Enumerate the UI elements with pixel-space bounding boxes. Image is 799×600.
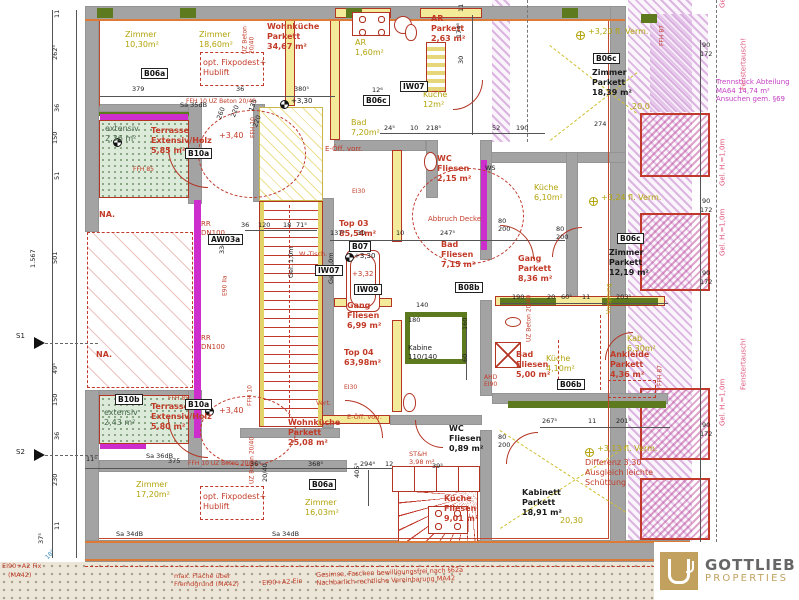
dimension-label: 375 [168, 458, 180, 466]
dimension-label: 60 [462, 354, 470, 362]
dimension-label: 190 [516, 125, 528, 133]
dimension-label: 37⁵ [38, 533, 46, 544]
dimension-label: 80 200 [498, 218, 510, 234]
room-label: EI90+A2 Fix [2, 563, 41, 571]
dimension-label: 172 [700, 207, 712, 215]
dimension-label: 137⁵ [330, 230, 345, 238]
dimension-label: 120 [258, 222, 270, 230]
component-tag: B06c [593, 53, 620, 64]
logo-u-glyph [668, 559, 690, 584]
dimension-label: 10 [410, 125, 418, 133]
dimension-label: 174⁵ [456, 23, 464, 38]
dimension-label: 267⁵ [542, 418, 557, 426]
dimension-label: 247⁵ [440, 230, 455, 238]
room-label: +3,13 fl. Verm. [597, 444, 657, 454]
room-label: E90 IIa [222, 275, 229, 296]
section-arrow-icon [34, 449, 45, 461]
optional-element-outline [608, 380, 656, 398]
dimension-line [76, 10, 77, 558]
dimension-label: 80 200 [556, 226, 568, 242]
room-label: extensiv 2,43 m² [104, 408, 138, 428]
room-label: +3,30 [291, 97, 312, 106]
dimension-label: 90 [702, 422, 710, 430]
logo-text: GOTTLIEB PROPERTIES [705, 558, 796, 585]
room-label: S1 [16, 332, 25, 341]
dimension-label: Sa 35dB [180, 102, 207, 110]
room-label: opt. Fixpodest+ Hublift [203, 58, 266, 78]
level-marker-icon [589, 197, 598, 206]
room-label-wohnkueche-1: Wohnküche Parkett 34,67 m² [267, 22, 319, 51]
room-label: extensiv 2,36 m² [105, 124, 139, 144]
room-label: EI30 [344, 384, 357, 391]
dimension-label: 379 [132, 86, 144, 94]
annotation-label: Gel. H.=1,0m [718, 379, 727, 426]
dimension-label: 11 [588, 418, 596, 426]
lintel-block [562, 8, 578, 18]
wall-outline [99, 20, 100, 106]
dimension-label: 60⁵ [561, 294, 572, 302]
component-tag: B07 [349, 241, 371, 252]
dimension-label: 80 200 [498, 434, 510, 450]
logo-name: GOTTLIEB [705, 558, 796, 574]
logo: GOTTLIEB PROPERTIES [654, 542, 799, 600]
toilet-icon [403, 393, 416, 412]
toilet-icon [405, 24, 417, 41]
room-label: NA. [99, 210, 115, 220]
section-arrow-icon [34, 337, 45, 349]
new-wall-strip [100, 114, 188, 121]
room-label-wohnkueche-2: Wohnküche Parkett 25,08 m² [288, 418, 340, 447]
room-label: Differenz 3,30 Ausgleich leichte Schüttu… [585, 458, 653, 487]
room-label: Gang Parkett 8,36 m² [518, 254, 552, 283]
dimension-line [540, 427, 670, 428]
annotation-label: Gel. H.=1,0m [718, 139, 727, 186]
room-label: (MA42) [8, 572, 31, 580]
wall-outline-orange [85, 541, 690, 543]
dimension-label: 150 [52, 394, 60, 406]
door-swing-arc [415, 420, 443, 448]
dimension-label: 11 [458, 4, 466, 12]
room-label: Küche Fliesen 9,01 m² [444, 494, 478, 523]
dimension-label: 11⁵ [86, 456, 97, 464]
dimension-label: 172 [700, 279, 712, 287]
component-tag: B06a [309, 479, 336, 490]
gottlieb-logo-icon [660, 552, 698, 590]
dimension-label: 203⁵ [616, 294, 631, 302]
dashed-partition [600, 315, 601, 390]
room-label-zimmer-4: Zimmer Parkett 12,19 m² [609, 248, 649, 277]
dimension-label: 1.567 [30, 249, 38, 268]
component-tag: IW09 [354, 284, 382, 295]
room-label: FFH 10 UZ Beton 20/40 [188, 460, 258, 467]
component-tag: B06c [363, 95, 390, 106]
room-label: 20,0 [632, 102, 650, 112]
room-label: +3,40 [219, 406, 244, 416]
wall-segment [99, 104, 191, 112]
door-swing-arc [453, 80, 483, 110]
dimension-label: 180 [408, 317, 420, 325]
dimension-label: 20/40 [262, 463, 270, 482]
component-tag: B08b [455, 282, 483, 293]
dimension-label: 172 [700, 431, 712, 439]
dimension-label: Sa 34dB [116, 531, 143, 539]
dimension-label: 90 [702, 42, 710, 50]
dimension-label: 262⁵ [52, 45, 60, 60]
room-label: Bad Fliesen 5,00 m² [516, 350, 550, 379]
dimension-label: 71⁵ [296, 222, 307, 230]
survey-marker-icon [280, 100, 289, 109]
room-label: Küche 12m² [423, 90, 447, 110]
floor-plan: Zimmer 10,30m²Zimmer 18,60m²Wohnküche Pa… [0, 0, 799, 600]
dimension-label: 160 [462, 318, 470, 330]
room-label: E-Öff. vorr. [347, 414, 382, 422]
component-tag: B06c [617, 233, 644, 244]
dimension-line [368, 470, 369, 506]
room-label: max. Fläche über Fremdgrund (MA42) [174, 573, 239, 589]
toilet-icon [424, 152, 437, 171]
room-label-zimmer-1: Zimmer 10,30m² [125, 30, 159, 50]
dimension-label: 12⁶ [372, 87, 383, 95]
room-label: EI30 [352, 188, 365, 195]
dimension-label: 20 [547, 294, 555, 302]
dimension-label: 12 [385, 461, 393, 469]
dimension-label: 36 [241, 222, 249, 230]
room-label: Gang Fliesen 6,99 m² [347, 301, 381, 330]
room-label-zimmer-3: Zimmer Parkett 18,39 m² [592, 68, 632, 97]
dimension-label: Gel. 1,0m [288, 246, 296, 278]
lintel-block [508, 401, 666, 408]
dimension-label: 36 [54, 104, 62, 112]
room-label: Vert. [316, 400, 331, 408]
room-label: Vorsprung [606, 283, 613, 314]
dimension-line [700, 40, 701, 560]
room-label: FFH 87 [659, 25, 666, 46]
dimension-label: 39⁵ [432, 463, 443, 471]
section-line [40, 343, 98, 344]
room-label: +3,24 fl. Verm. [601, 193, 661, 203]
room-label: FFH 85 [133, 166, 154, 173]
new-wall-strip [100, 443, 146, 449]
room-label: UZ Beton 20/40 [526, 295, 533, 342]
dimension-line [472, 15, 473, 135]
dimension-label: 36 [54, 432, 62, 440]
washbasin-icon [505, 317, 521, 327]
lintel-block [641, 14, 657, 23]
dimension-label: 190 [512, 294, 524, 302]
room-label: UZ Beton 20/40 [241, 26, 256, 54]
room-label: NA. [96, 350, 112, 360]
room-label: E-Öff. vorr. [325, 145, 363, 154]
annotation-label: Gel. H.=1,0m [718, 0, 727, 8]
dashed-partition [289, 205, 290, 423]
dimension-label: 218⁵ [426, 125, 441, 133]
dimension-label: 230 [52, 474, 60, 486]
dimension-label: 52 [492, 125, 500, 133]
dimension-label: 30 [357, 230, 365, 238]
dimension-label: 405⁵ [354, 463, 362, 478]
wall-outline-orange [85, 559, 690, 561]
dimension-label: 172 [700, 51, 712, 59]
wall-segment [566, 152, 578, 298]
component-tag: IW07 [400, 81, 428, 92]
dimension-label: 90 [702, 270, 710, 278]
dimension-label: 380⁵ [294, 86, 309, 94]
logo-subtitle: PROPERTIES [705, 573, 796, 584]
room-label: Bad Fliesen 7,15 m² [441, 240, 475, 269]
component-tag: B10a [185, 148, 212, 159]
wall-segment [480, 152, 626, 163]
room-label: S2 [16, 448, 25, 457]
component-tag: B10b [115, 394, 143, 405]
room-label: opt. Fixpodest+ Hublift [203, 492, 266, 512]
dimension-label: 49⁵ [52, 363, 60, 374]
room-label: Zimmer 17,20m² [136, 480, 170, 500]
room-label: ST&H 3,98 m² [409, 451, 434, 467]
room-label: AHD EI90 [484, 374, 497, 389]
dimension-label: Sa 34dB [272, 531, 299, 539]
room-label: Ankleide Parkett 4,36 m² [610, 350, 649, 379]
room-label: WS [485, 165, 496, 173]
lintel-block [97, 8, 113, 18]
component-tag: B06a [141, 68, 168, 79]
dashed-line [527, 0, 528, 142]
dimension-label: 368⁵ [308, 461, 323, 469]
annotation-label: Trennstück Abteilung MA64 14,74 m² Ansuc… [716, 78, 790, 104]
room-label: WC Fliesen 2,15 m² [437, 154, 471, 183]
dimension-label: 30 [458, 56, 466, 64]
room-label: FFH 87 [657, 365, 664, 386]
dimension-label: 274 [594, 121, 606, 129]
dimension-label: 11 [54, 522, 62, 530]
screenshot-root: { "logo": { "name": "GOTTLIEB", "subtitl… [0, 0, 799, 600]
room-label: Küche 6,10m² [534, 183, 563, 203]
annotation-label: 18° [44, 548, 57, 561]
dimension-label: 36 [236, 86, 244, 94]
dimension-label: 11 [582, 294, 590, 302]
room-label: +3,40 [219, 131, 244, 141]
component-tag: IW07 [315, 265, 343, 276]
dimension-label: 140 [416, 302, 428, 310]
cooktop-icon [352, 12, 390, 36]
component-tag: AW03a [208, 234, 243, 245]
annotation-label: Fenstertausch! [739, 38, 748, 90]
room-label: +3,20 fl. Verm. [588, 27, 648, 37]
wall-segment [85, 390, 99, 562]
dimension-label: 24⁵ [384, 125, 395, 133]
level-marker-icon [576, 31, 585, 40]
room-label: AR 1,60m² [355, 38, 384, 58]
wall-outline [99, 538, 609, 539]
room-label-zimmer-2: Zimmer 18,60m² [199, 30, 233, 50]
annotation-label: Fenstertausch! [739, 338, 748, 390]
na-zone [87, 232, 193, 388]
wall-segment-existing [330, 20, 340, 140]
room-label: FFH 10 [247, 385, 254, 406]
wall-segment [85, 6, 99, 232]
dimension-label: 11 [54, 10, 62, 18]
room-label: Bad 7,20m² [351, 118, 380, 138]
dimension-label: 90 [702, 198, 710, 206]
wall-segment-existing [392, 320, 402, 412]
annotation-label: Gel. H.=1,0m [718, 209, 727, 256]
dimension-label: 150 [52, 132, 60, 144]
room-label: Abbruch Decke [428, 215, 481, 224]
lintel-block [180, 8, 196, 18]
dimension-label: 201⁵ [616, 418, 631, 426]
room-label: W.-Tisch. [299, 251, 327, 259]
facade-hatch [492, 0, 510, 142]
level-marker-icon [585, 448, 594, 457]
room-label: WC Fliesen 0,89 m² [449, 424, 483, 453]
dimension-line [380, 133, 545, 134]
unit-label-top04: Top 04 63,98m² [344, 348, 381, 368]
room-label: Kabine 110/140 [408, 344, 437, 361]
room-label: +3,32 [352, 270, 373, 279]
component-tag: B10a [185, 399, 212, 410]
room-label-kabinett: Kabinett Parkett 18,91 m² [522, 488, 562, 517]
ladder-stair [426, 42, 446, 92]
room-label: 20,30 [560, 516, 583, 526]
dimension-label: 18 [283, 222, 291, 230]
dimension-label: 10 [396, 230, 404, 238]
survey-marker-icon [345, 253, 354, 262]
dashed-partition [85, 566, 690, 567]
dimension-label: 501 [52, 252, 60, 264]
room-label: RR DN100 [201, 334, 225, 351]
room-label: +3,30 [354, 252, 375, 261]
component-tag: B06b [557, 379, 585, 390]
dimension-line [245, 230, 317, 231]
dimension-label: 36⁵ [250, 461, 261, 469]
dimension-label: 51 [54, 172, 62, 180]
staircase [260, 202, 322, 426]
room-label: Zimmer 16,03m² [305, 498, 339, 518]
dimension-label: 294⁴ [360, 461, 375, 469]
